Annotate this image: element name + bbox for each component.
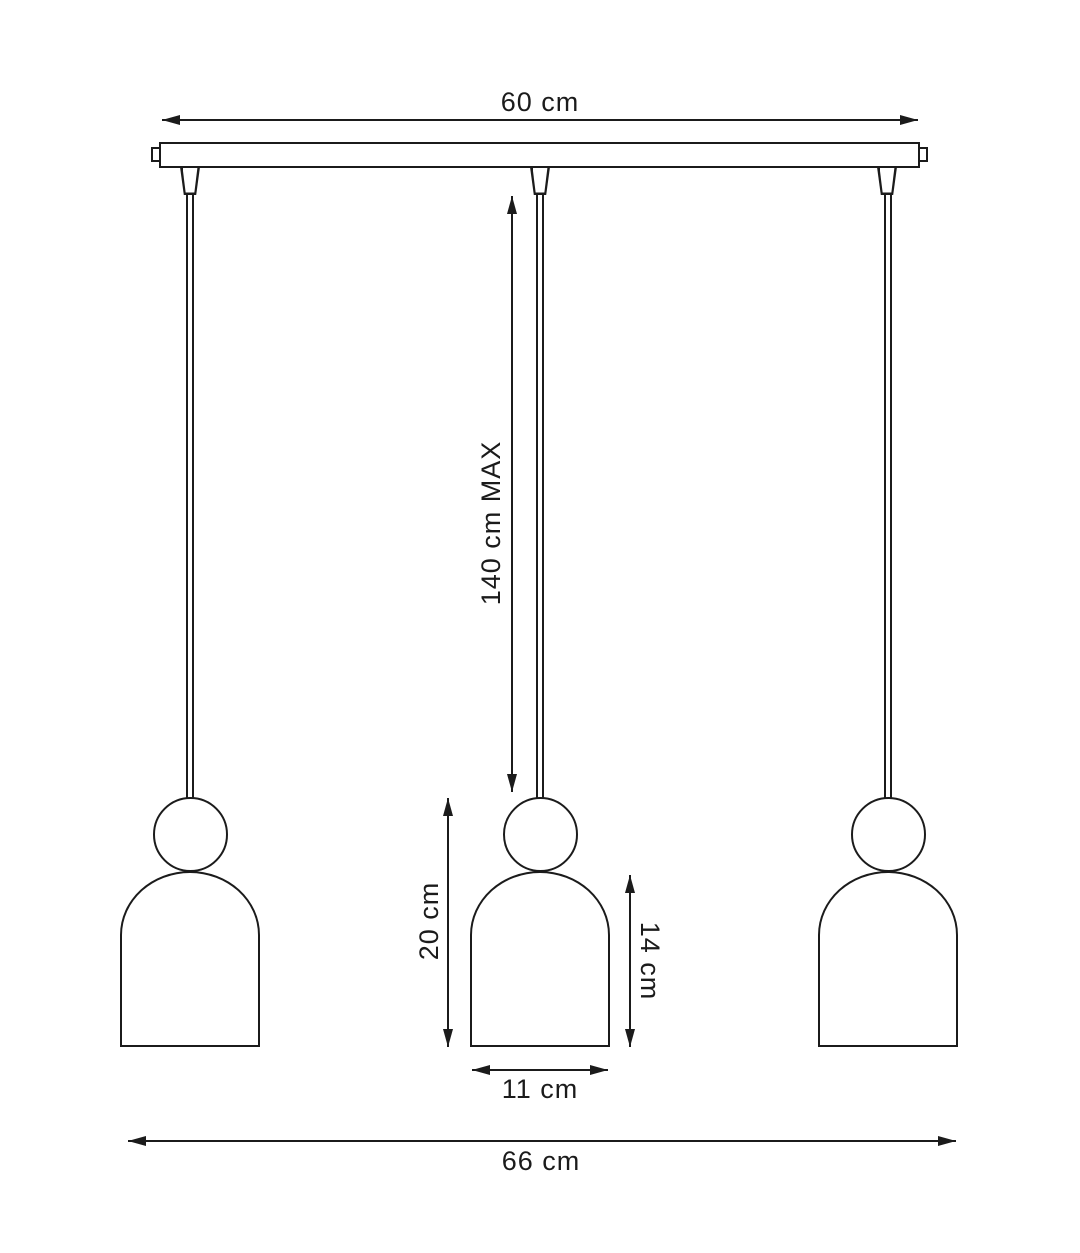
arrowhead-up [625, 875, 635, 893]
arrowhead-left [472, 1065, 490, 1075]
lamp-dimension-diagram: 60 cm 140 cm MAX 20 cm 14 cm [0, 0, 1080, 1253]
dim-shade-height-label: 14 cm [633, 922, 667, 1001]
dim-canopy-width-line [162, 119, 918, 121]
shade-center [470, 871, 610, 1047]
dim-shade-width-label: 11 cm [502, 1072, 579, 1106]
arrowhead-right [590, 1065, 608, 1075]
cord-grip-right [877, 167, 897, 195]
arrowhead-left [162, 115, 180, 125]
dim-shade-height-line [629, 875, 631, 1047]
ball-center [503, 797, 578, 872]
cord-grip-left [180, 167, 200, 195]
arrowhead-right [900, 115, 918, 125]
cord-grip-center [530, 167, 550, 195]
dim-overall-width-label: 66 cm [502, 1144, 581, 1178]
arrowhead-right [938, 1136, 956, 1146]
shade-left [120, 871, 260, 1047]
dim-overall-width-line [128, 1140, 956, 1142]
arrowhead-down [625, 1029, 635, 1047]
mounting-bar [159, 142, 920, 168]
dim-shade-width-line [472, 1069, 608, 1071]
arrowhead-left [128, 1136, 146, 1146]
dim-pendant-height-line [447, 798, 449, 1047]
shade-right [818, 871, 958, 1047]
dim-pendant-height-label: 20 cm [412, 882, 446, 961]
cord-left [186, 194, 194, 801]
dim-suspension-max-label: 140 cm MAX [474, 441, 508, 606]
arrowhead-down [507, 774, 517, 792]
cord-center [536, 194, 544, 801]
arrowhead-down [443, 1029, 453, 1047]
dim-canopy-width-label: 60 cm [501, 85, 580, 119]
arrowhead-up [443, 798, 453, 816]
arrowhead-up [507, 196, 517, 214]
ball-right [851, 797, 926, 872]
dim-suspension-max-line [511, 196, 513, 792]
cord-right [884, 194, 892, 801]
ball-left [153, 797, 228, 872]
